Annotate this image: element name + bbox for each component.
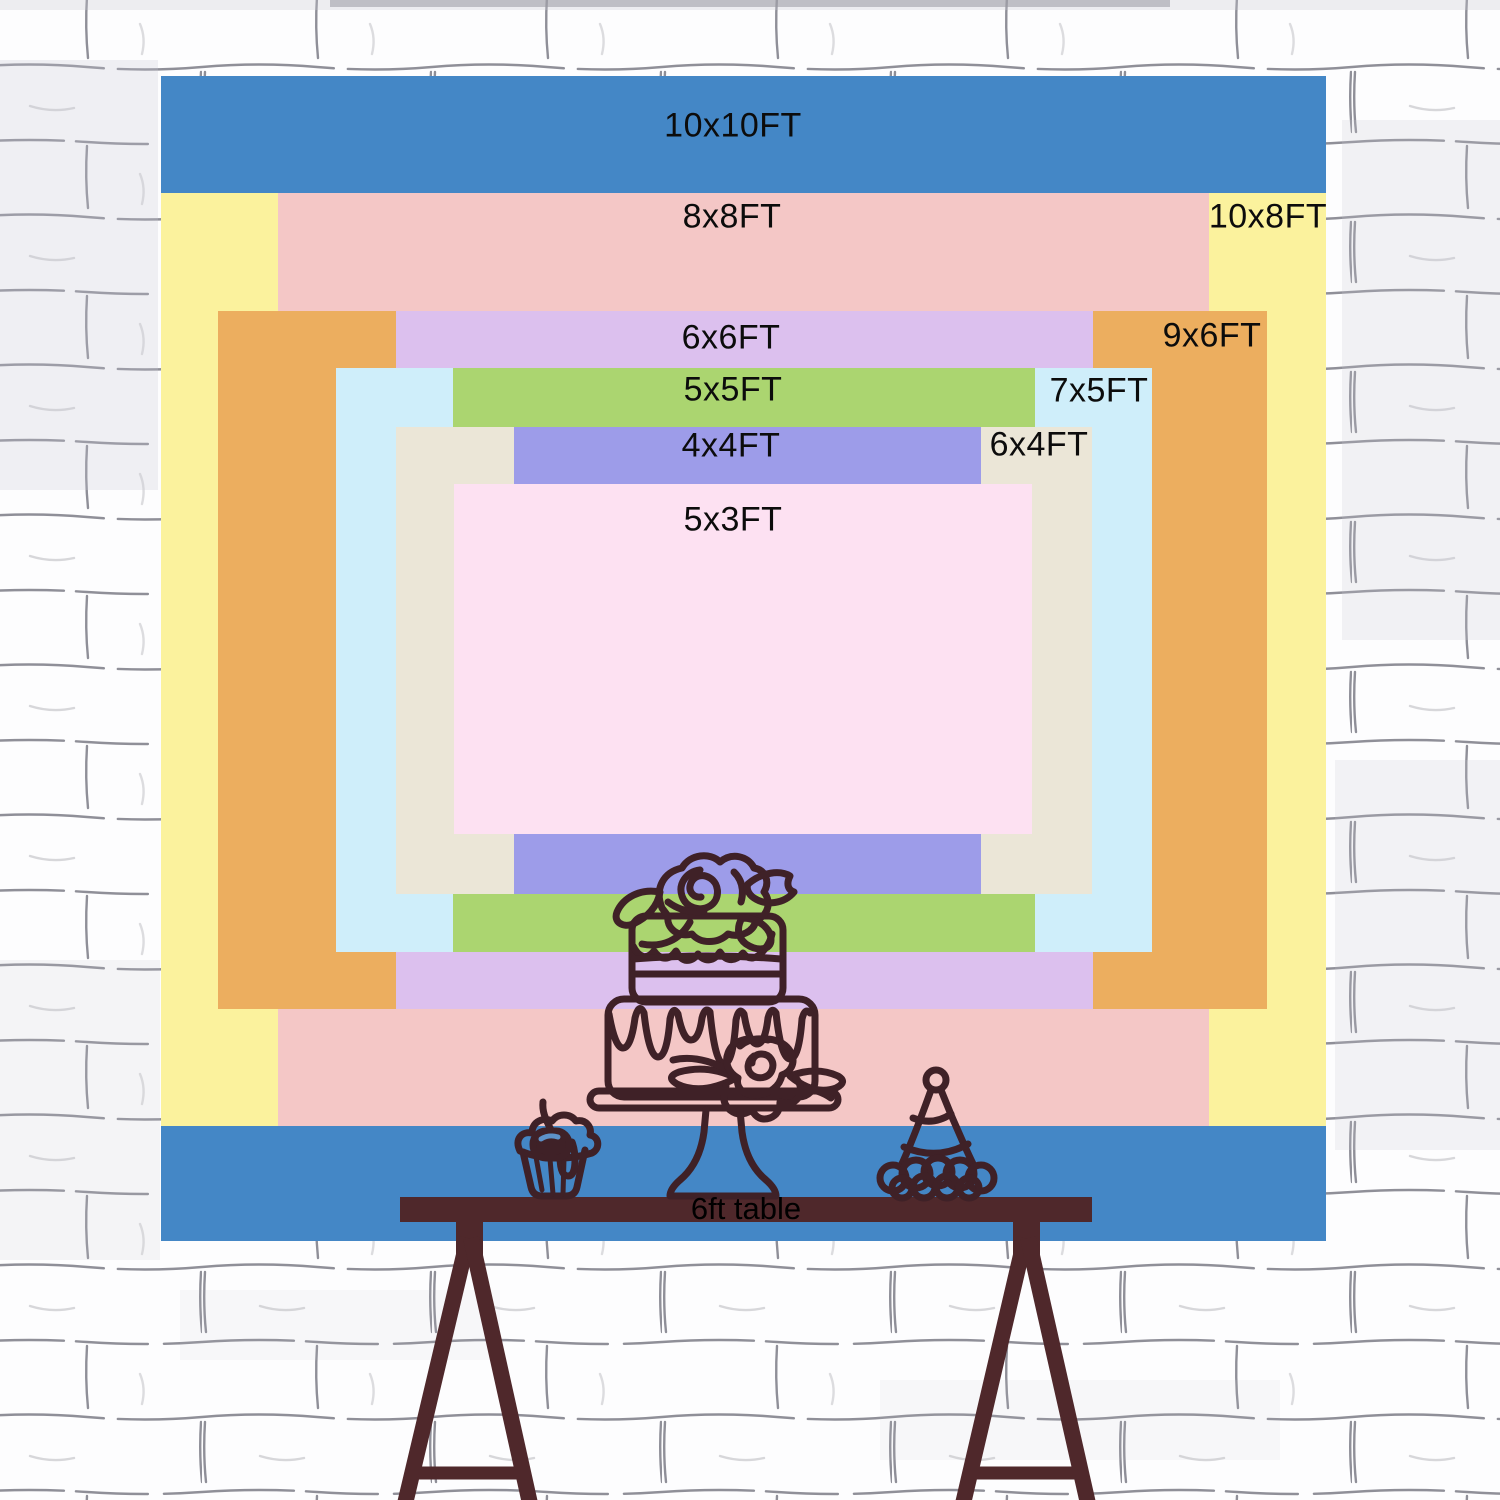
cupcake-pleat-2: [550, 1159, 553, 1194]
table-leg-right-front: [962, 1238, 1025, 1500]
cupcake-cherry-stem: [543, 1102, 551, 1130]
table: [400, 1197, 1092, 1500]
cupcake-pleat-1: [536, 1157, 542, 1190]
rose-fold-right: [734, 872, 742, 902]
table-leg-left-front: [404, 1238, 468, 1500]
cake: [590, 856, 843, 1196]
cake-top-rose: [616, 856, 794, 949]
dessert-table-illustration: [0, 0, 1500, 1500]
table-size-label: 6ft table: [691, 1191, 801, 1227]
table-legs: [404, 1238, 1089, 1500]
side-rose-outer: [727, 1039, 793, 1095]
table-leg-right-back: [1028, 1238, 1089, 1500]
hat-pompom-trim: [880, 1158, 994, 1198]
hat-tip-ball: [926, 1070, 946, 1090]
side-rose-spiral: [748, 1054, 773, 1078]
cake-bottom-drip-icing: [609, 1009, 810, 1064]
cake-stand-stem: [670, 1110, 776, 1196]
rose-leaf-left: [616, 891, 660, 925]
cake-stripe-1: [634, 956, 781, 959]
table-leg-left-back: [471, 1238, 531, 1500]
backdrop-size-chart: 10x10FT 8x8FT 10x8FT 6x6FT 9x6FT 5x5FT 7…: [0, 0, 1500, 1500]
cupcake-pleat-3: [563, 1159, 564, 1194]
line-art: [518, 856, 994, 1198]
cupcake: [518, 1102, 598, 1196]
rose-spiral: [681, 870, 718, 909]
party-hat: [880, 1070, 994, 1198]
